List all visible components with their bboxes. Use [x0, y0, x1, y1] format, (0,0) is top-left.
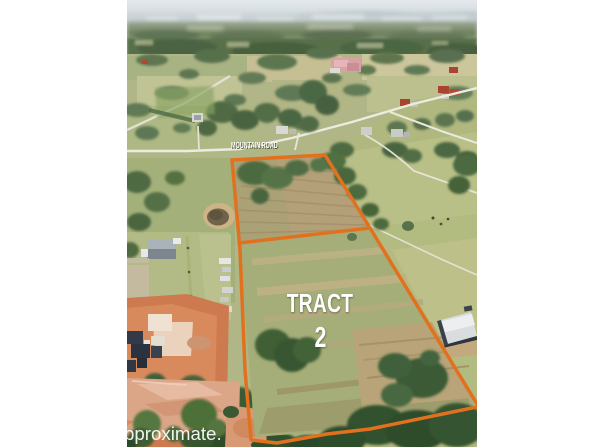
svg-text:TRACT: TRACT	[287, 289, 354, 317]
svg-text:MOUNTAIN ROAD: MOUNTAIN ROAD	[231, 142, 278, 150]
svg-text:pproximate.: pproximate.	[127, 423, 222, 444]
svg-text:2: 2	[315, 322, 327, 354]
